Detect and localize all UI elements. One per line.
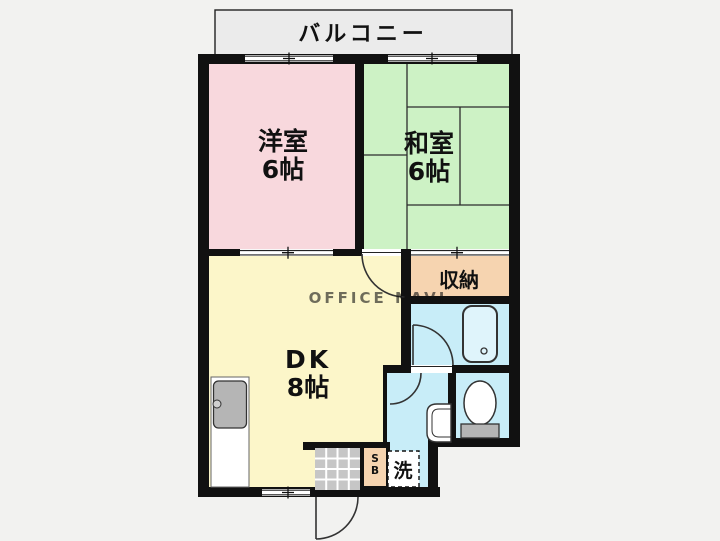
bathtub <box>463 306 497 362</box>
western-room-size: 6帖 <box>262 155 304 184</box>
doorway-japanese-dk <box>362 249 401 256</box>
floorplan-image: バルコニー 洋室 6帖 和室 6帖 DK 8帖 収納 洗 S B OFFICE … <box>0 0 720 541</box>
toilet-tank <box>461 424 499 438</box>
balcony-label: バルコニー <box>298 22 428 47</box>
kitchen-unit <box>211 377 249 487</box>
toilet-bowl <box>464 381 496 425</box>
toilet <box>461 381 499 438</box>
japanese-room-label: 和室 <box>404 129 454 158</box>
kitchen-faucet <box>213 400 221 408</box>
dk-room-label: DK <box>285 345 331 374</box>
entrance-door-arc <box>316 497 358 539</box>
shoe-box-label-b: B <box>371 465 379 477</box>
washbasin <box>427 404 451 442</box>
western-room-label: 洋室 <box>258 127 308 156</box>
japanese-room-size: 6帖 <box>408 157 450 186</box>
shoe-box-label-s: S <box>371 453 379 465</box>
laundry-label: 洗 <box>393 459 412 482</box>
doorway-bathroom <box>411 365 452 373</box>
entrance-tiles <box>315 448 360 490</box>
dk-room-size: 8帖 <box>287 373 329 402</box>
watermark-text: OFFICE NAVI <box>309 289 448 307</box>
